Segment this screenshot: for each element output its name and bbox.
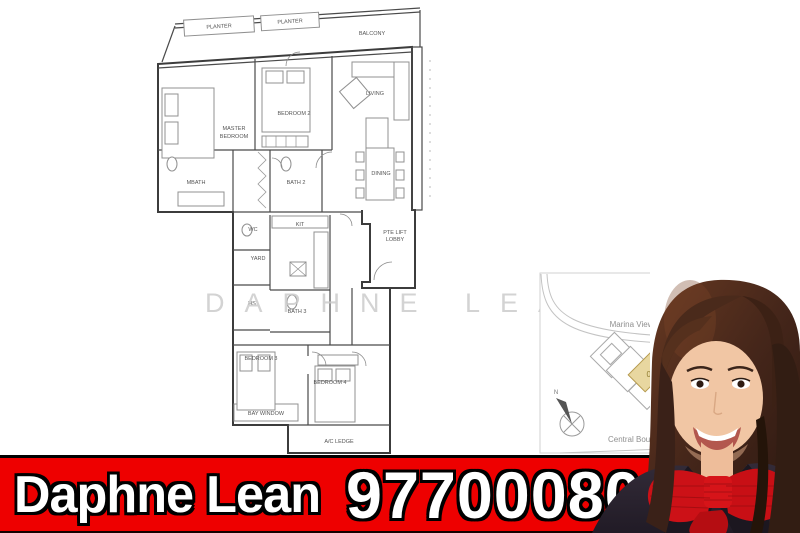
label-lobby: LOBBY xyxy=(386,237,405,243)
label-balcony: BALCONY xyxy=(359,31,386,37)
label-wc: WC xyxy=(248,227,257,233)
flyer-canvas: PLANTER PLANTER BALCONY MASTER BEDROOM B… xyxy=(0,0,800,533)
label-master-bedroom-1: MASTER xyxy=(223,126,246,132)
label-bedroom-4: BEDROOM 4 xyxy=(313,380,346,386)
label-bedroom-3: BEDROOM 3 xyxy=(244,356,277,362)
agent-banner: Daphne Lean 97700080 xyxy=(0,455,800,533)
label-pte-lift: PTE LIFT xyxy=(383,230,407,236)
lift-lobby-outline xyxy=(362,210,415,288)
label-bedroom-2: BEDROOM 2 xyxy=(277,111,310,117)
agent-name-text: Daphne Lean xyxy=(14,469,320,521)
map-road-bottom-label: Central Boulevard xyxy=(608,435,672,444)
label-bath-2: BATH 2 xyxy=(287,180,306,186)
label-mbath: MBATH xyxy=(187,180,206,186)
floor-plan: PLANTER PLANTER BALCONY MASTER BEDROOM B… xyxy=(0,0,800,533)
compass-north-label: N xyxy=(554,390,558,396)
label-living: LIVING xyxy=(366,91,384,97)
label-dining: DINING xyxy=(371,171,390,177)
label-ac-ledge: A/C LEDGE xyxy=(324,439,354,445)
label-master-bedroom-2: BEDROOM xyxy=(220,134,249,140)
label-bay-window: BAY WINDOW xyxy=(248,411,285,417)
unit-number-label: 02 xyxy=(647,370,656,379)
site-map: Marina View Link Central Boulevard 02 N xyxy=(540,273,690,453)
label-kit: KIT xyxy=(296,222,305,228)
map-road-top-label: Marina View Link xyxy=(610,320,672,329)
agent-phone-text: 97700080 xyxy=(346,462,642,528)
label-yard: YARD xyxy=(251,256,266,262)
